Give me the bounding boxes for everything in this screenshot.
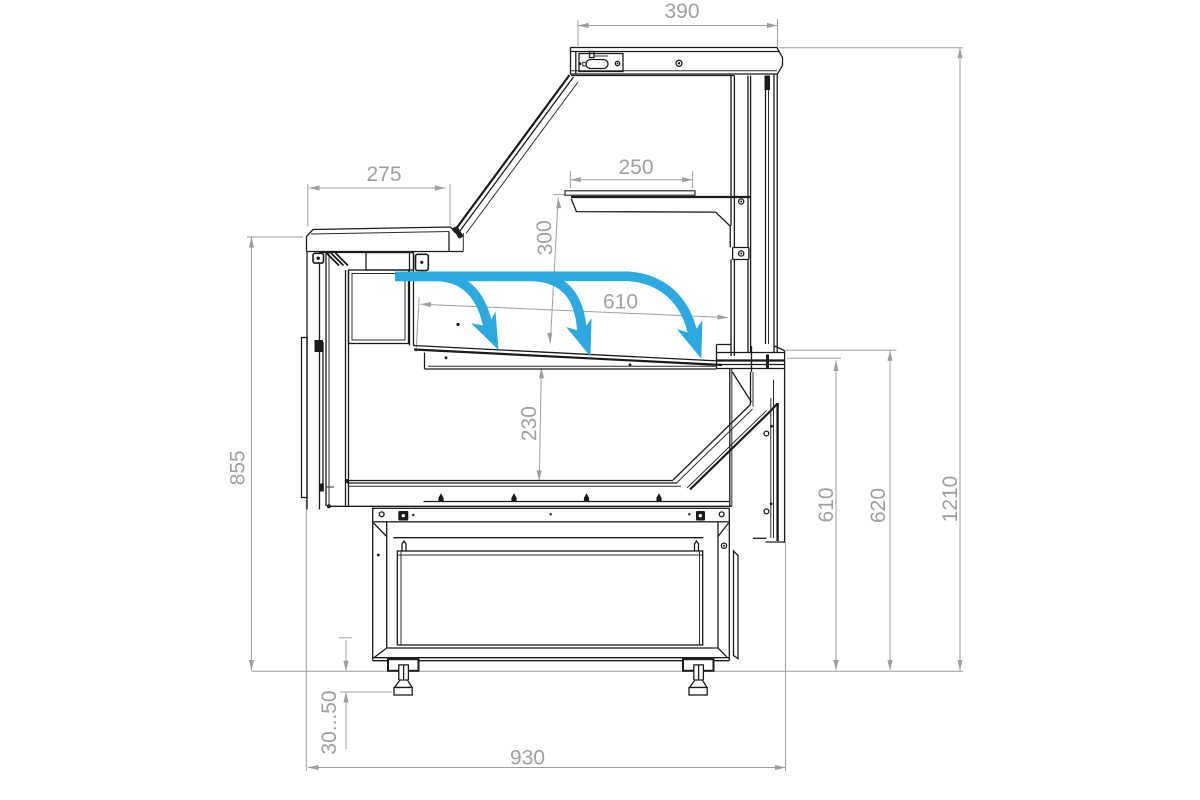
svg-text:30...50: 30...50 [318,690,341,754]
svg-text:1210: 1210 [939,476,962,523]
svg-text:610: 610 [815,487,838,522]
svg-text:610: 610 [603,291,638,314]
svg-text:390: 390 [664,0,699,23]
svg-text:300: 300 [533,220,558,256]
svg-text:855: 855 [227,450,250,485]
svg-text:930: 930 [510,747,545,770]
svg-text:250: 250 [618,156,653,179]
svg-text:230: 230 [518,406,542,441]
svg-text:620: 620 [867,488,890,523]
svg-text:275: 275 [366,163,401,186]
